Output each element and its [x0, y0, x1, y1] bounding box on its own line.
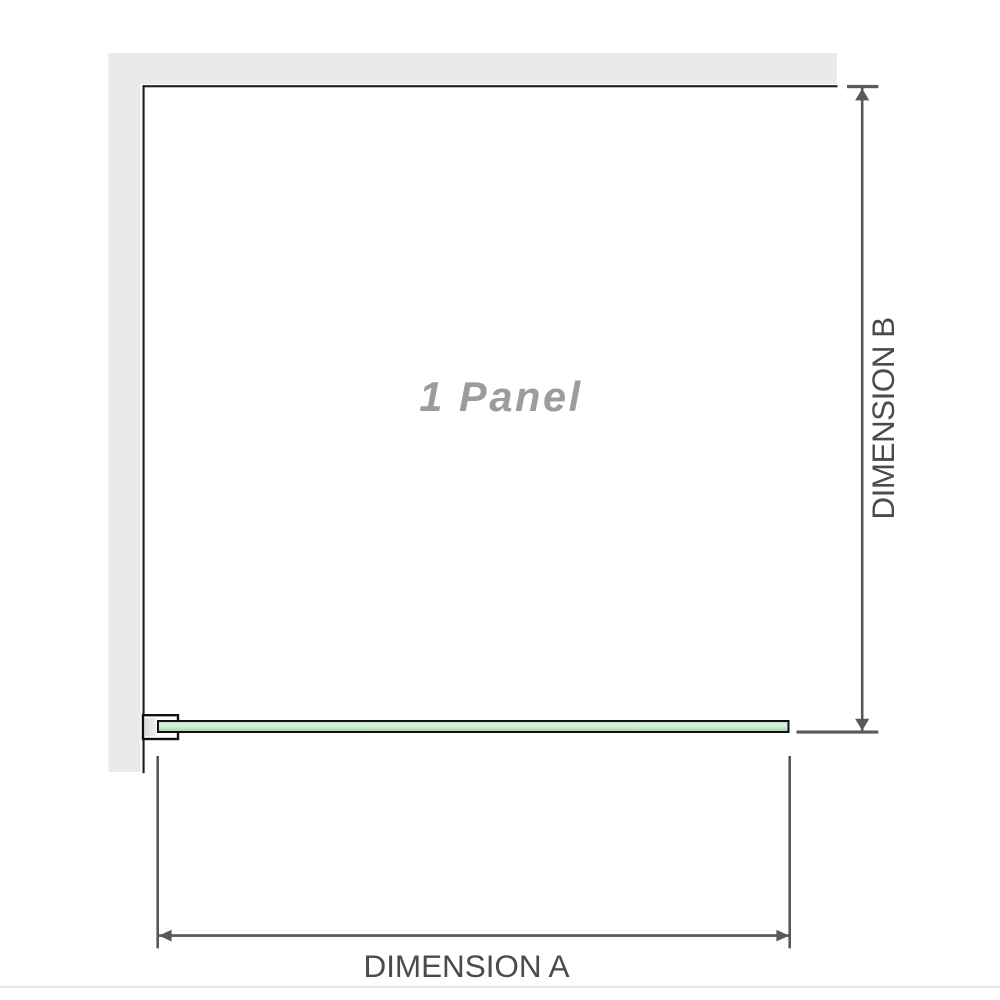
svg-text:DIMENSION B: DIMENSION B: [865, 317, 901, 519]
svg-text:1 Panel: 1 Panel: [419, 373, 583, 420]
svg-text:DIMENSION A: DIMENSION A: [364, 948, 570, 984]
